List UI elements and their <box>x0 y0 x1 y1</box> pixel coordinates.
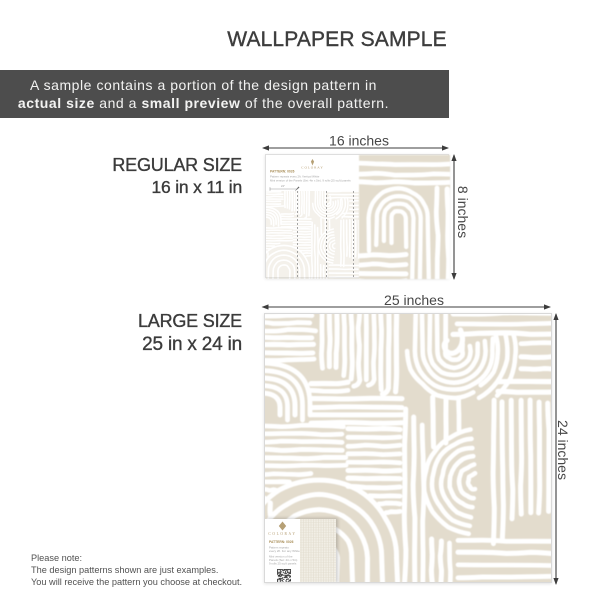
svg-text:PATTERN: 0026: PATTERN: 0026 <box>269 540 294 544</box>
svg-text:24": 24" <box>281 184 285 188</box>
svg-text:16 inches: 16 inches <box>329 133 389 149</box>
svg-text:Mini version of the Panels (Se: Mini version of the Panels (Set: 4in x 5… <box>270 178 351 182</box>
svg-text:COLORAY: COLORAY <box>268 532 296 536</box>
svg-text:25 inches: 25 inches <box>384 292 444 308</box>
svg-text:COLORAY: COLORAY <box>301 166 323 170</box>
svg-text:PATTERN: 0026: PATTERN: 0026 <box>270 170 295 174</box>
svg-text:9 rolls 25 sq ft panels: 9 rolls 25 sq ft panels <box>269 562 297 566</box>
svg-text:24 inches: 24 inches <box>555 420 571 480</box>
svg-text:8 inches: 8 inches <box>455 186 471 238</box>
svg-text:every 2ft. For any White: every 2ft. For any White <box>269 549 300 553</box>
